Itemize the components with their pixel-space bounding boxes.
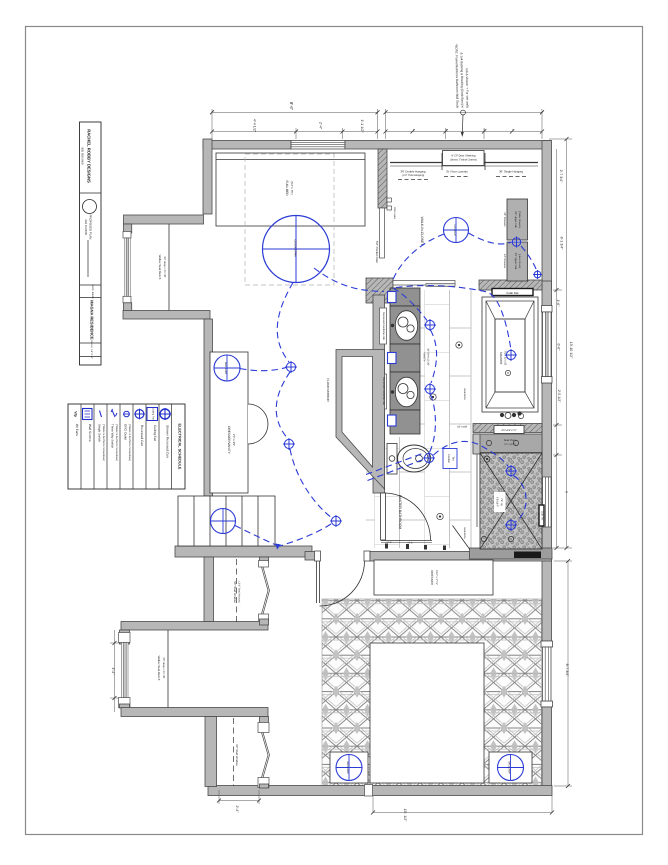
svg-text:50" Stud Window: 50" Stud Window — [235, 744, 239, 766]
svg-text:24" Drawers: 24" Drawers — [503, 212, 506, 227]
svg-text:50" Stud Window: 50" Stud Window — [233, 581, 237, 603]
svg-text:MAGNA RESIDENCE: MAGNA RESIDENCE — [90, 300, 95, 340]
svg-text:(.6′0" Total Hanging): (.6′0" Total Hanging) — [402, 174, 425, 177]
svg-text:WALL LAMP: WALL LAMP — [346, 761, 349, 774]
svg-text:RACHEL ROBBY DESIGNS: RACHEL ROBBY DESIGNS — [87, 129, 92, 183]
svg-text:36" Single Hanging: 36" Single Hanging — [499, 170, 523, 174]
svg-text:4′10" x 1′7.5": 4′10" x 1′7.5" — [435, 570, 438, 585]
svg-text:2nd FLOOR: 2nd FLOOR — [84, 219, 88, 235]
svg-text:6′-0": 6′-0" — [557, 344, 561, 352]
svg-text:DATE: 9/5/14: DATE: 9/5/14 — [91, 284, 94, 299]
svg-text:1′-6": 1′-6" — [556, 300, 560, 308]
svg-text:GFCI Outlet: GFCI Outlet — [124, 424, 128, 440]
svg-text:2′0" x 3′9": 2′0" x 3′9" — [232, 434, 236, 446]
svg-text:+5′-6: +5′-6 — [407, 542, 413, 545]
svg-text:(*Mains to be Plume Screwdown): (*Mains to be Plume Screwdown) — [102, 424, 105, 461]
svg-text:V/p: V/p — [74, 411, 78, 417]
svg-text:Wall Sconce: Wall Sconce — [88, 424, 92, 442]
svg-text:Seat/Niche: Seat/Niche — [463, 388, 466, 400]
svg-text:Grab Bar: Grab Bar — [506, 291, 518, 295]
svg-text:24" Upper Cab: 24" Upper Cab — [514, 211, 517, 228]
svg-text:8′-7 3/4": 8′-7 3/4" — [565, 664, 569, 678]
svg-text:FLOOR MIRROR: FLOOR MIRROR — [326, 378, 330, 402]
svg-text:Curb Tile: Curb Tile — [541, 511, 544, 521]
svg-text:SCALE: 1/4"=1′-0": SCALE: 1/4"=1′-0" — [90, 340, 93, 359]
svg-text:2′-4": 2′-4" — [235, 806, 239, 814]
svg-text:5′0" Pocket Door: 5′0" Pocket Door — [375, 241, 379, 263]
svg-text:ELECTRICAL SCHEDULE: ELECTRICAL SCHEDULE — [178, 424, 182, 470]
svg-text:(*Mains to be Plume Screwdown): (*Mains to be Plume Screwdown) — [128, 424, 131, 461]
svg-text:PROPOSED PLAN: PROPOSED PLAN — [89, 215, 93, 240]
svg-text:Ceiling Fan: Ceiling Fan — [153, 425, 157, 441]
svg-text:DRESSER: DRESSER — [430, 570, 434, 585]
svg-text:VANITY: VANITY — [423, 352, 426, 361]
svg-text:W/ Fans: W/ Fans — [75, 424, 79, 436]
svg-text:4′-4": 4′-4" — [111, 668, 115, 676]
svg-text:WALL LAMP: WALL LAMP — [224, 362, 227, 375]
svg-text:6′-1 3/4": 6′-1 3/4" — [560, 237, 564, 251]
svg-text:2′-5 1/2": 2′-5 1/2" — [557, 390, 561, 404]
svg-text:24" Upper Cab: 24" Upper Cab — [514, 253, 517, 270]
svg-text:(*Make Drawers): (*Make Drawers) — [518, 211, 521, 228]
svg-text:8′ CF Door Shelving: 8′ CF Door Shelving — [452, 155, 476, 158]
svg-text:4′-4 1/2": 4′-4 1/2" — [253, 119, 257, 133]
svg-text:WALK-IN-CLOSET: WALK-IN-CLOSET — [420, 217, 424, 246]
svg-text:TUB 32 x 65: TUB 32 x 65 — [504, 351, 507, 366]
svg-text:2′-7 3/4": 2′-7 3/4" — [559, 170, 563, 184]
svg-text:(.3′0" Total Window): (.3′0" Total Window) — [238, 581, 241, 602]
svg-text:2′-4": 2′-4" — [319, 122, 323, 130]
svg-text:4′6"x3′4": 4′6"x3′4" — [496, 497, 499, 507]
svg-text:tub & shower + For wet walls: tub & shower + For wet walls — [465, 68, 470, 108]
svg-text:Recessed Can: Recessed Can — [140, 425, 144, 446]
svg-text:4′6"x3′4"x7′6": 4′6"x3′4"x7′6" — [501, 429, 517, 432]
svg-text:3′9" deep x 1′0 7/8": 3′9" deep x 1′0 7/8" — [162, 657, 165, 678]
svg-text:Shower Recessed Can: Shower Recessed Can — [166, 425, 170, 458]
svg-text:Seat/Niche: Seat/Niche — [463, 527, 466, 539]
svg-text:36" Double Hanging: 36" Double Hanging — [401, 170, 426, 174]
svg-text:Single Switch: Single Switch — [98, 424, 102, 442]
svg-text:7′6" clg: 7′6" clg — [500, 498, 503, 506]
svg-text:8′-6": 8′-6" — [289, 102, 294, 111]
svg-text:Recessed medicine cab: Recessed medicine cab — [382, 312, 385, 340]
svg-text:Comfort: Comfort — [447, 454, 450, 464]
svg-text:905 559 6409: 905 559 6409 — [81, 147, 85, 165]
svg-text:(Shoes, Folded Clothes): (Shoes, Folded Clothes) — [450, 159, 477, 162]
svg-text:+5′-8: +5′-8 — [386, 541, 392, 544]
svg-text:Wall Hooks: Wall Hooks — [393, 207, 396, 220]
svg-text:FULL BED: FULL BED — [285, 180, 289, 196]
svg-text:CEILING FAN: CEILING FAN — [294, 239, 298, 256]
svg-text:SOAKER: SOAKER — [499, 352, 503, 365]
svg-text:WALL LAMP: WALL LAMP — [508, 761, 511, 774]
svg-text:3′9" deep x 1′0 7/8": 3′9" deep x 1′0 7/8" — [163, 256, 166, 277]
svg-text:MASTER BATHROOM: MASTER BATHROOM — [398, 495, 402, 530]
svg-text:DRESSER/VANITY: DRESSER/VANITY — [227, 426, 231, 454]
svg-text:36" SINK (2) 36": 36" SINK (2) 36" — [427, 348, 430, 366]
svg-text:9: 9 — [565, 491, 569, 493]
svg-text:(Linen Closet): (Linen Closet) — [518, 254, 521, 269]
svg-text:1′-1 1/2": 1′-1 1/2" — [360, 119, 364, 133]
svg-text:Walker Seat Bench: Walker Seat Bench — [157, 656, 161, 681]
svg-text:24" Drawers: 24" Drawers — [503, 254, 506, 269]
svg-text:(*Mains to be Plume Screwdown): (*Mains to be Plume Screwdown) — [115, 424, 118, 461]
svg-text:Walker Seat Bench: Walker Seat Bench — [158, 255, 162, 280]
svg-text:PONY WALL: PONY WALL — [516, 554, 534, 558]
svg-text:Ceiling Fan: Ceiling Fan — [152, 408, 155, 421]
svg-text:(54" x 75"): (54" x 75") — [290, 181, 294, 194]
svg-text:Three Way Switch: Three Way Switch — [111, 424, 115, 449]
svg-text:Recessed medicine cab: Recessed medicine cab — [382, 377, 385, 405]
svg-text:St. Floor Laundry: St. Floor Laundry — [446, 170, 468, 174]
svg-text:Trio: Trio — [452, 456, 455, 461]
svg-text:42"t wall: 42"t wall — [457, 426, 467, 429]
svg-text:13′- 1/2": 13′- 1/2" — [403, 809, 407, 823]
svg-text:LED LIGHT: LED LIGHT — [453, 224, 456, 236]
svg-text:13′-10 1/2": 13′-10 1/2" — [569, 342, 573, 359]
